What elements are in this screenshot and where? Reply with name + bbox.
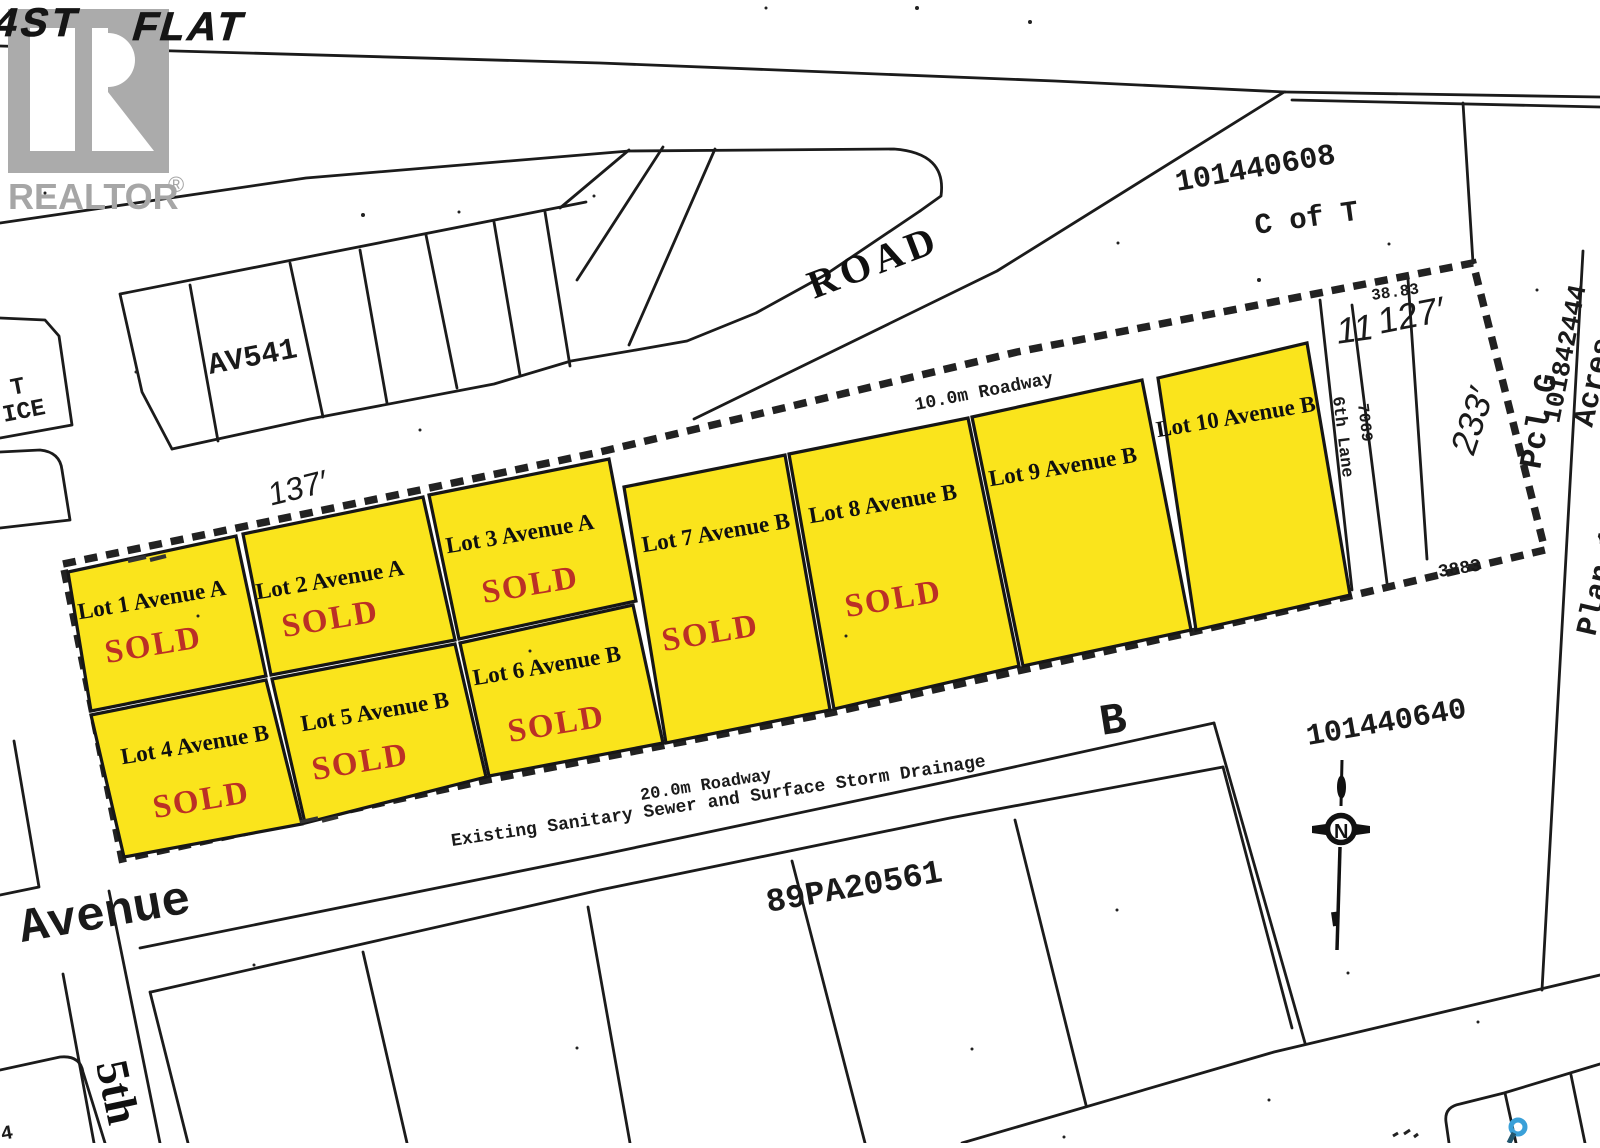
svg-text:REALTOR: REALTOR [8, 176, 179, 217]
svg-text:11: 11 [1335, 306, 1375, 353]
svg-text:®: ® [168, 172, 184, 197]
svg-text:FLAT: FLAT [127, 4, 251, 49]
svg-text:N: N [1334, 821, 1348, 843]
svg-text:4ST: 4ST [0, 0, 86, 45]
